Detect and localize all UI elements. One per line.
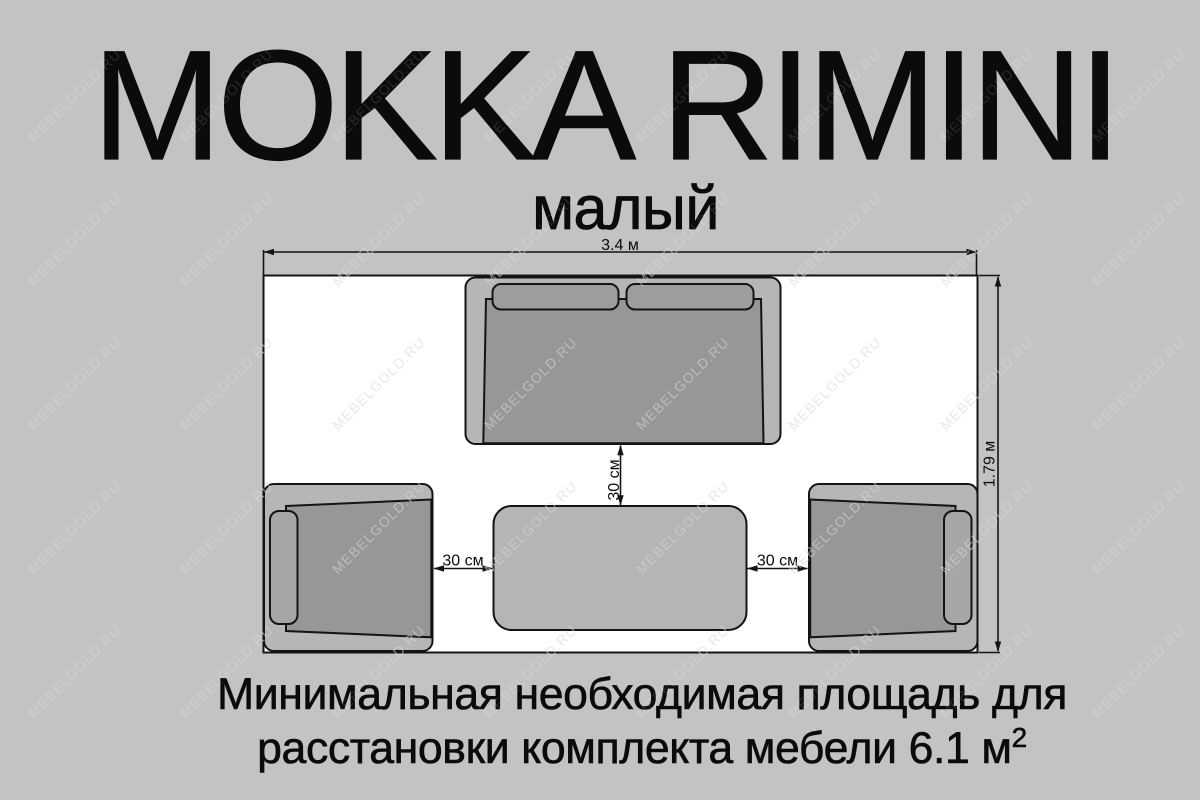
svg-text:MEBELGOLD.RU: MEBELGOLD.RU (481, 622, 580, 721)
svg-text:MEBELGOLD.RU: MEBELGOLD.RU (937, 622, 1036, 721)
svg-text:MEBELGOLD.RU: MEBELGOLD.RU (1089, 190, 1188, 289)
svg-text:MEBELGOLD.RU: MEBELGOLD.RU (937, 46, 1036, 145)
svg-text:MEBELGOLD.RU: MEBELGOLD.RU (329, 46, 428, 145)
svg-text:MEBELGOLD.RU: MEBELGOLD.RU (25, 190, 124, 289)
svg-text:MEBELGOLD.RU: MEBELGOLD.RU (177, 190, 276, 289)
svg-text:MEBELGOLD.RU: MEBELGOLD.RU (633, 334, 732, 433)
svg-text:MEBELGOLD.RU: MEBELGOLD.RU (633, 46, 732, 145)
svg-text:MEBELGOLD.RU: MEBELGOLD.RU (1089, 622, 1188, 721)
svg-text:MEBELGOLD.RU: MEBELGOLD.RU (177, 334, 276, 433)
svg-text:MEBELGOLD.RU: MEBELGOLD.RU (937, 334, 1036, 433)
svg-text:MEBELGOLD.RU: MEBELGOLD.RU (329, 334, 428, 433)
svg-text:MEBELGOLD.RU: MEBELGOLD.RU (25, 622, 124, 721)
svg-text:MEBELGOLD.RU: MEBELGOLD.RU (785, 334, 884, 433)
svg-text:MEBELGOLD.RU: MEBELGOLD.RU (785, 46, 884, 145)
svg-text:MEBELGOLD.RU: MEBELGOLD.RU (481, 190, 580, 289)
svg-text:MEBELGOLD.RU: MEBELGOLD.RU (785, 478, 884, 577)
svg-text:MEBELGOLD.RU: MEBELGOLD.RU (177, 46, 276, 145)
svg-text:MEBELGOLD.RU: MEBELGOLD.RU (481, 478, 580, 577)
svg-text:MEBELGOLD.RU: MEBELGOLD.RU (1089, 478, 1188, 577)
svg-text:MEBELGOLD.RU: MEBELGOLD.RU (633, 190, 732, 289)
svg-text:MEBELGOLD.RU: MEBELGOLD.RU (329, 622, 428, 721)
svg-text:MEBELGOLD.RU: MEBELGOLD.RU (633, 478, 732, 577)
svg-text:MEBELGOLD.RU: MEBELGOLD.RU (785, 190, 884, 289)
svg-text:MEBELGOLD.RU: MEBELGOLD.RU (329, 190, 428, 289)
svg-text:MEBELGOLD.RU: MEBELGOLD.RU (25, 478, 124, 577)
svg-text:MEBELGOLD.RU: MEBELGOLD.RU (329, 478, 428, 577)
svg-text:MEBELGOLD.RU: MEBELGOLD.RU (1089, 46, 1188, 145)
svg-text:MEBELGOLD.RU: MEBELGOLD.RU (937, 190, 1036, 289)
svg-text:MEBELGOLD.RU: MEBELGOLD.RU (177, 622, 276, 721)
svg-text:MEBELGOLD.RU: MEBELGOLD.RU (633, 622, 732, 721)
svg-text:MEBELGOLD.RU: MEBELGOLD.RU (1089, 334, 1188, 433)
svg-text:MEBELGOLD.RU: MEBELGOLD.RU (25, 46, 124, 145)
svg-text:MEBELGOLD.RU: MEBELGOLD.RU (481, 334, 580, 433)
svg-text:MEBELGOLD.RU: MEBELGOLD.RU (481, 46, 580, 145)
svg-text:MEBELGOLD.RU: MEBELGOLD.RU (25, 334, 124, 433)
svg-text:MEBELGOLD.RU: MEBELGOLD.RU (177, 478, 276, 577)
svg-text:MEBELGOLD.RU: MEBELGOLD.RU (785, 622, 884, 721)
svg-text:MEBELGOLD.RU: MEBELGOLD.RU (937, 478, 1036, 577)
